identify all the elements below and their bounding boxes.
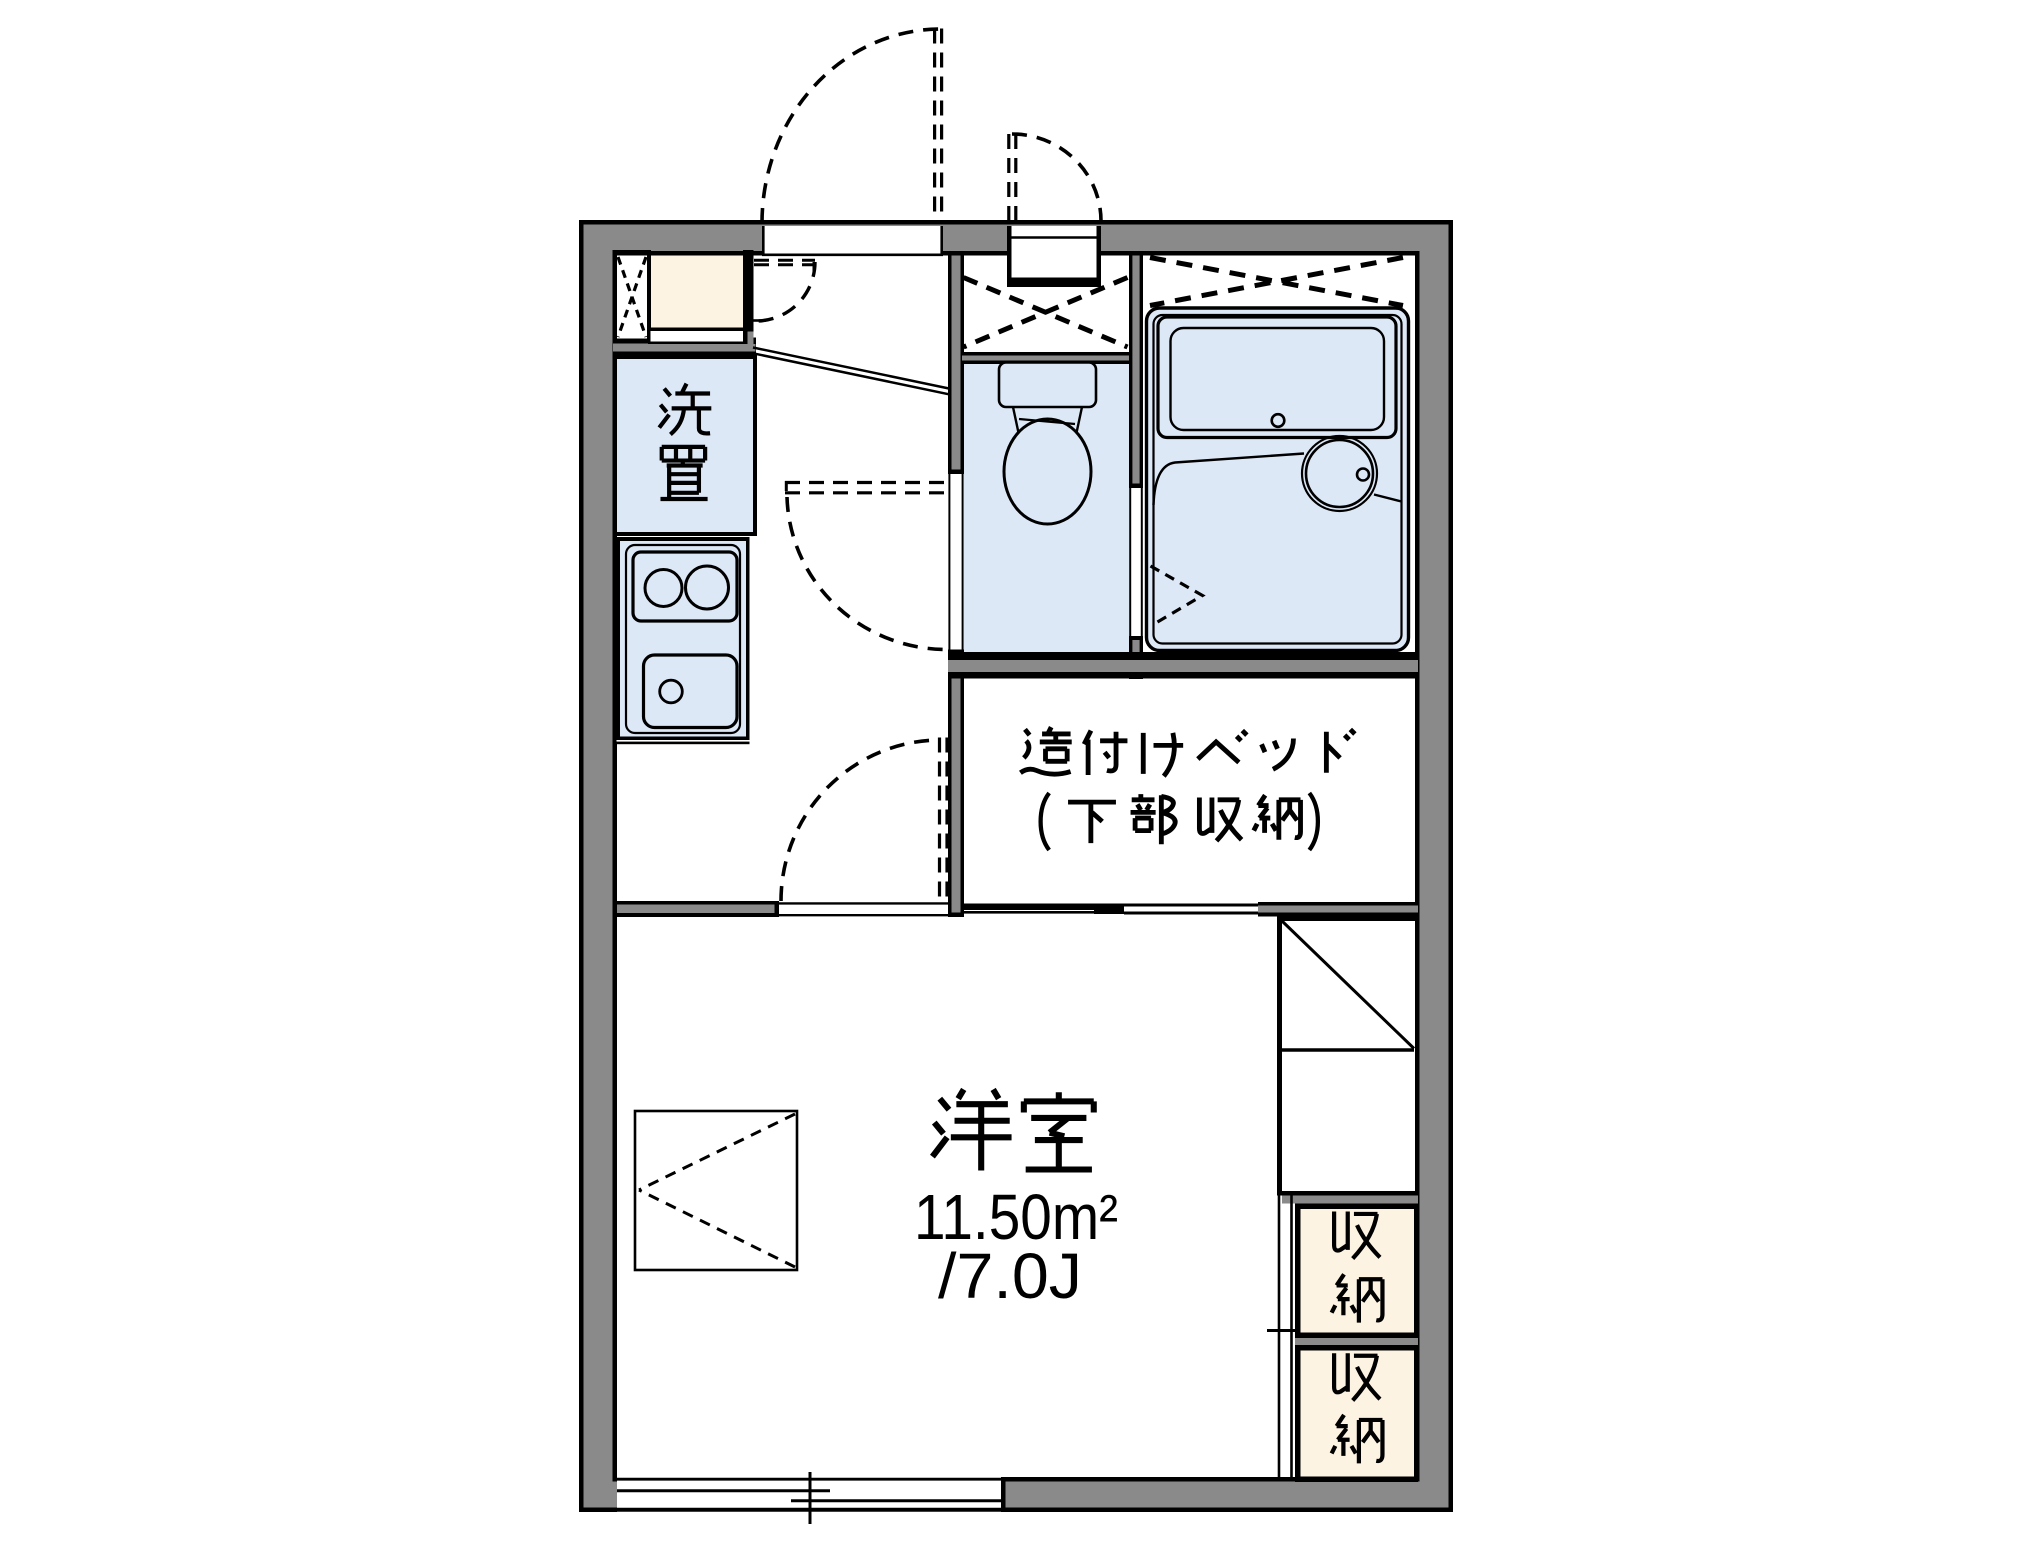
svg-text:/7.0J: /7.0J <box>938 1240 1082 1312</box>
